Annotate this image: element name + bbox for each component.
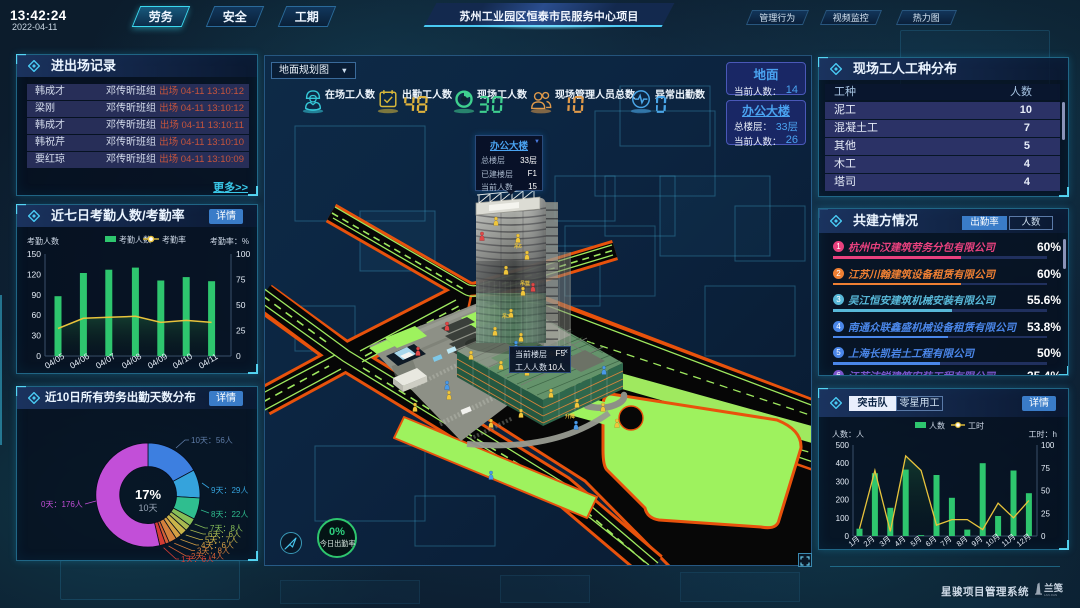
svg-text:人数: 人数 (929, 421, 945, 431)
svg-text:400: 400 (836, 459, 850, 468)
svg-text:人数：人: 人数：人 (832, 429, 864, 439)
svg-text:100: 100 (836, 514, 850, 523)
svg-text:50: 50 (236, 300, 246, 310)
svg-text:0天：176人: 0天：176人 (41, 500, 83, 509)
svg-text:25: 25 (236, 326, 246, 336)
svg-text:吊篮: 吊篮 (520, 280, 530, 287)
svg-text:0: 0 (236, 351, 241, 361)
svg-text:150: 150 (27, 249, 41, 259)
svg-text:100: 100 (1041, 441, 1055, 450)
svg-text:100: 100 (236, 249, 250, 259)
svg-text:60: 60 (32, 310, 42, 320)
svg-text:17%: 17% (135, 487, 161, 502)
svg-text:25: 25 (1041, 509, 1050, 518)
svg-text:0: 0 (1041, 532, 1046, 541)
svg-text:1天：6人: 1天：6人 (181, 555, 214, 562)
svg-text:9天：29人: 9天：29人 (211, 486, 248, 495)
svg-text:0: 0 (36, 351, 41, 361)
svg-text:8天：22人: 8天：22人 (211, 510, 248, 519)
svg-text:LAN JIAN: LAN JIAN (1044, 593, 1057, 597)
svg-text:考勤人数: 考勤人数 (27, 236, 59, 246)
svg-text:工时：h: 工时：h (1029, 429, 1057, 439)
svg-text:75: 75 (236, 275, 246, 285)
svg-text:120: 120 (27, 269, 41, 279)
svg-text:500: 500 (836, 441, 850, 450)
svg-text:90: 90 (32, 290, 42, 300)
svg-text:吊6: 吊6 (514, 243, 522, 250)
svg-text:10天：56人: 10天：56人 (191, 436, 233, 445)
svg-text:考勤率：%: 考勤率：% (210, 236, 249, 246)
svg-text:200: 200 (836, 496, 850, 505)
svg-text:50: 50 (1041, 487, 1050, 496)
svg-text:考勤率: 考勤率 (162, 235, 186, 245)
svg-text:10天: 10天 (138, 503, 157, 513)
svg-text:30: 30 (32, 331, 42, 341)
svg-text:300: 300 (836, 477, 850, 486)
svg-text:75: 75 (1041, 464, 1050, 473)
svg-text:工时: 工时 (968, 421, 984, 431)
svg-text:升降: 升降 (565, 413, 576, 420)
